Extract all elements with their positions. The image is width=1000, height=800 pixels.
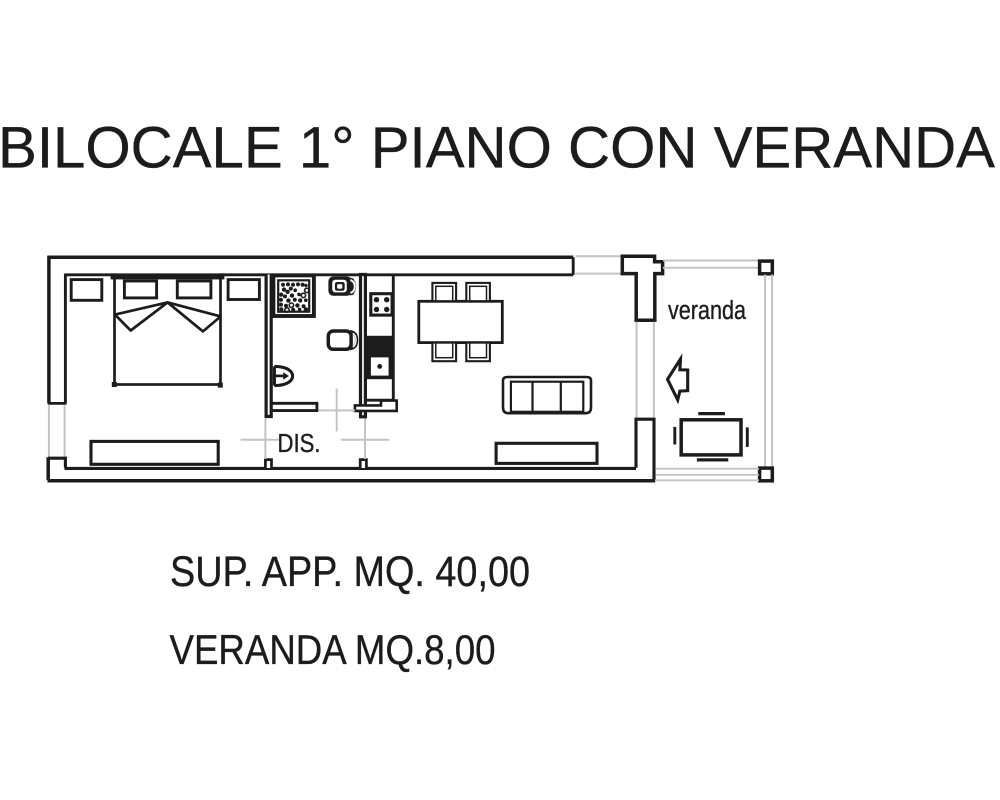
svg-text:veranda: veranda [668, 297, 747, 325]
svg-text:SUP. APP. MQ. 40,00: SUP. APP. MQ. 40,00 [170, 548, 530, 596]
svg-text:DIS.: DIS. [278, 428, 321, 458]
svg-text:BILOCALE 1° PIANO CON VERANDA: BILOCALE 1° PIANO CON VERANDA [0, 116, 995, 181]
svg-text:VERANDA MQ.8,00: VERANDA MQ.8,00 [170, 626, 496, 673]
